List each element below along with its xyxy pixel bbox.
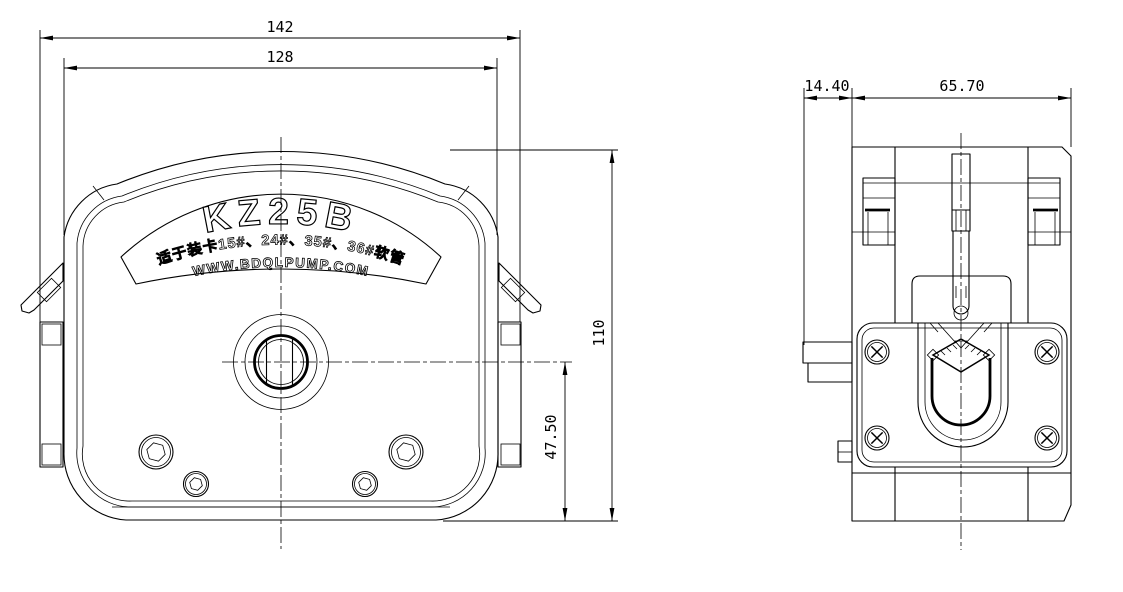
latch-lever-left (21, 263, 63, 313)
phillips-screw-bottom-left (865, 426, 889, 450)
phillips-screw-top-left (865, 340, 889, 364)
mounting-plate-inner (862, 328, 1062, 462)
dim-side-tab-depth: 14.40 (804, 77, 852, 345)
front-side-block-right (498, 322, 521, 467)
dim-text-128: 128 (266, 48, 293, 66)
side-pivot-housing (912, 276, 1011, 323)
side-mount-lug-upper (803, 342, 852, 363)
dim-text-47-50: 47.50 (542, 414, 560, 459)
pump-head-drawing: KZ25B 适于装卡15#、24#、35#、36#软管 WWW.BDQLPUMP… (0, 0, 1123, 592)
side-body-outline (852, 147, 1071, 521)
dim-text-142: 142 (266, 18, 293, 36)
hex-socket-icon (357, 477, 372, 491)
phillips-screw-bottom-right (1035, 426, 1059, 450)
dim-text-65-70: 65.70 (939, 77, 984, 95)
front-side-block-left (40, 322, 63, 467)
dim-front-height: 110 (443, 150, 618, 521)
lever-grip-detail (501, 278, 524, 301)
hex-screw-bottom-left (184, 472, 209, 497)
cad-drawing-canvas: KZ25B 适于装卡15#、24#、35#、36#软管 WWW.BDQLPUMP… (0, 0, 1123, 592)
hex-socket-icon (395, 442, 418, 463)
mounting-plate-outer (857, 323, 1067, 467)
dim-text-110: 110 (590, 319, 608, 346)
side-u-channel (918, 323, 1008, 447)
side-view: 14.40 65.70 (803, 77, 1071, 550)
dim-front-center-to-bottom: 47.50 (542, 362, 567, 521)
side-clamp-right (1028, 178, 1060, 245)
dim-text-14-40: 14.40 (804, 77, 849, 95)
side-small-tab (838, 441, 852, 462)
phillips-screw-top-right (1035, 340, 1059, 364)
hex-socket-icon (188, 477, 203, 491)
lever-grip-detail (37, 278, 60, 301)
hex-socket-icon (145, 442, 168, 463)
hex-screw-top-right (389, 435, 423, 469)
side-clamp-left (863, 178, 895, 245)
front-view: KZ25B 适于装卡15#、24#、35#、36#软管 WWW.BDQLPUMP… (21, 18, 618, 549)
side-mount-lug-lower (808, 363, 852, 382)
hex-screw-bottom-right (353, 472, 378, 497)
dim-side-body-depth: 65.70 (852, 77, 1071, 147)
hex-screw-top-left (139, 435, 173, 469)
